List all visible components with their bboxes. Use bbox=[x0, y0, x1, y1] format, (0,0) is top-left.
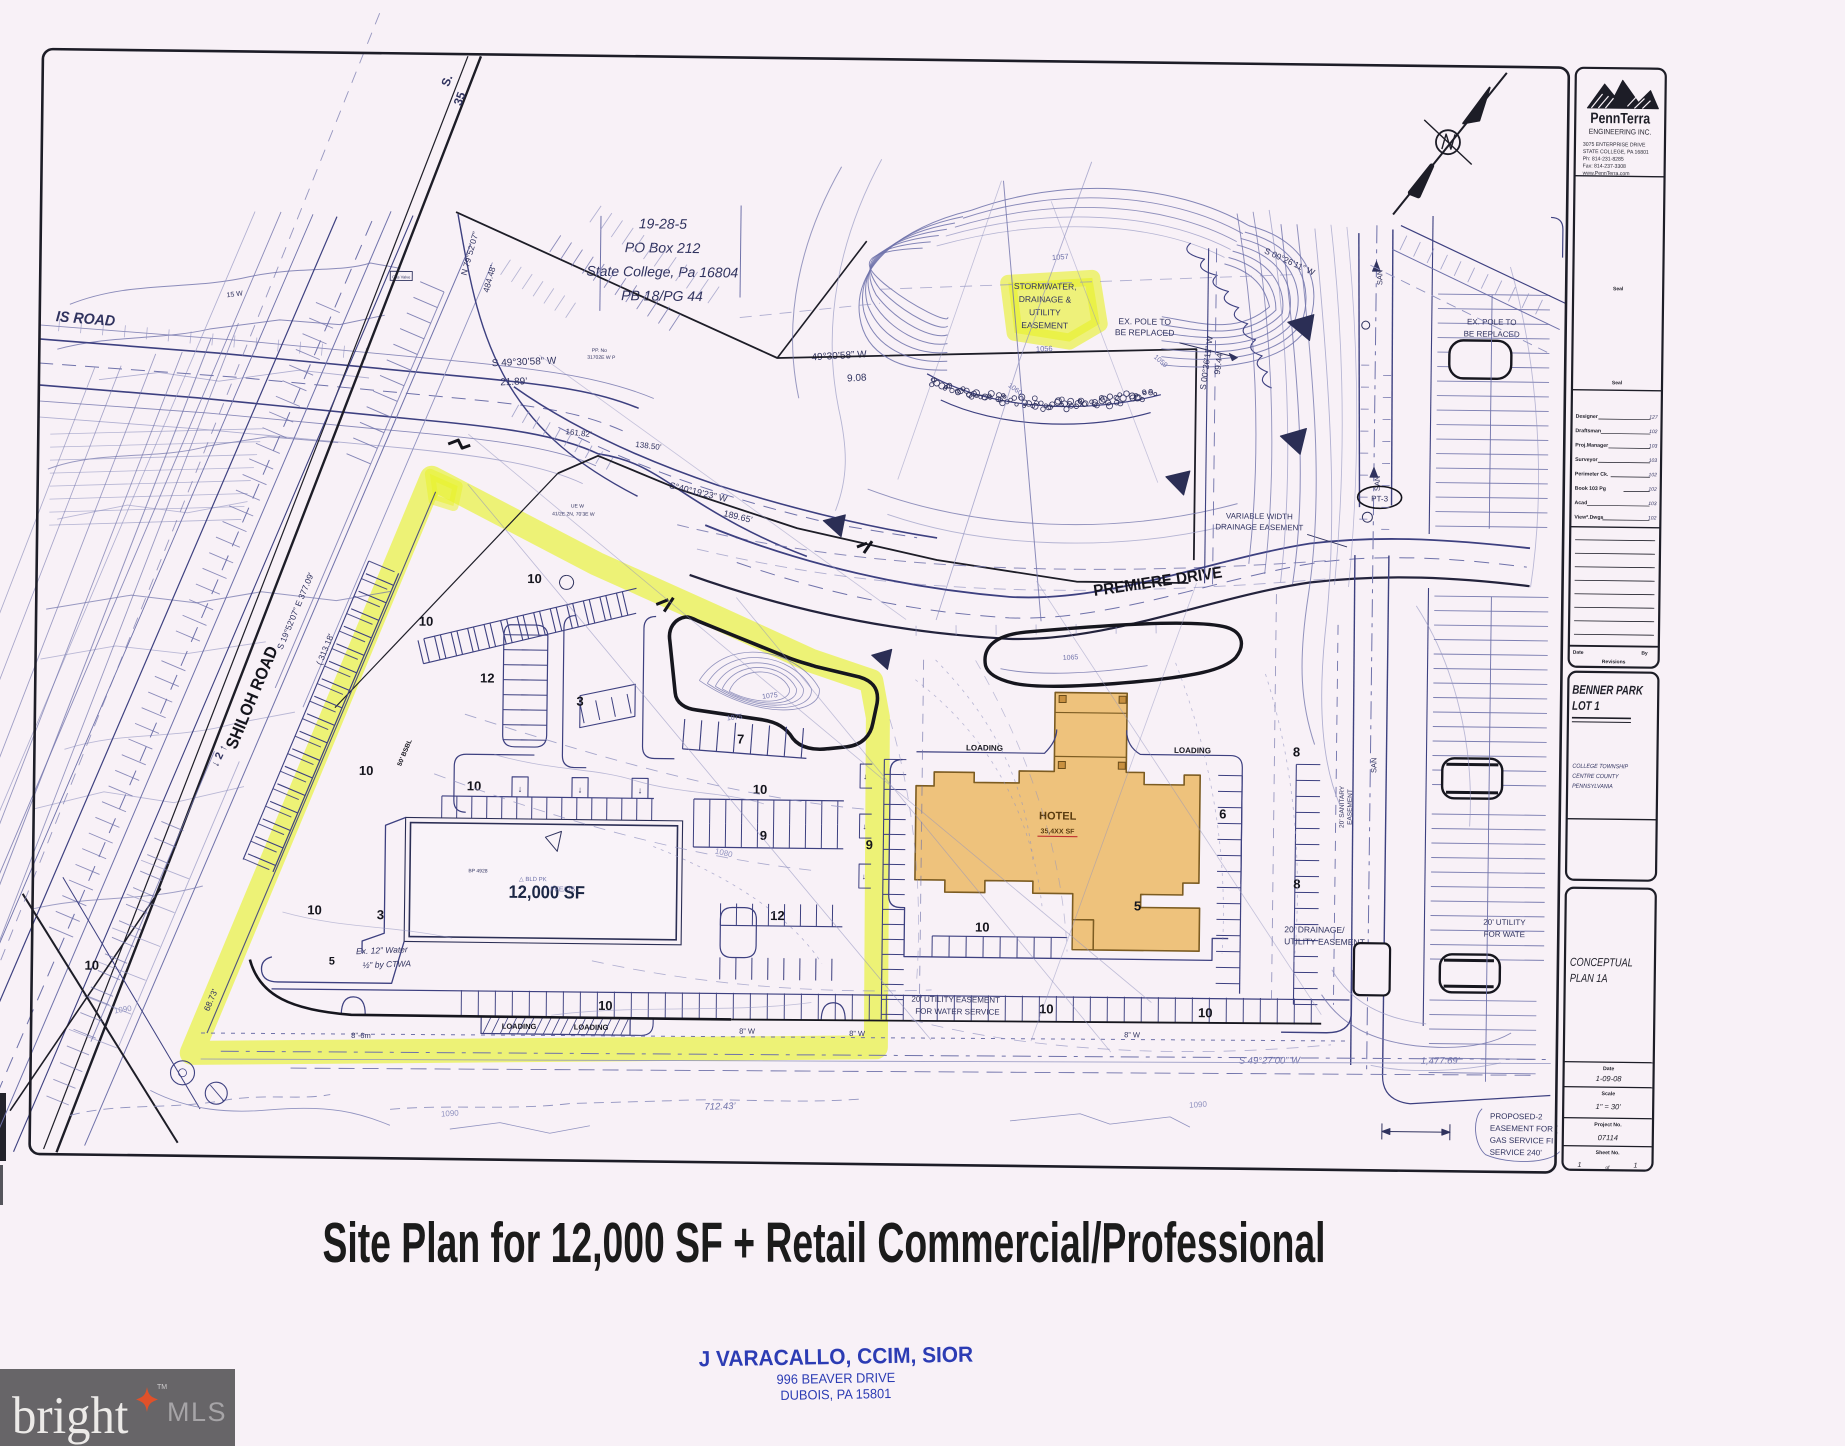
svg-text:8” W: 8” W bbox=[849, 1029, 866, 1038]
svg-text:102: 102 bbox=[1648, 515, 1657, 521]
svg-text:102: 102 bbox=[1649, 429, 1658, 435]
svg-text:TM: TM bbox=[157, 1384, 167, 1391]
svg-text:10: 10 bbox=[419, 614, 434, 629]
svg-text:↓: ↓ bbox=[863, 772, 867, 781]
svg-text:HOTEL: HOTEL bbox=[1039, 810, 1077, 822]
svg-text:20’ SANITARY: 20’ SANITARY bbox=[1339, 785, 1347, 828]
svg-text:↓: ↓ bbox=[863, 822, 867, 831]
svg-text:1065: 1065 bbox=[1063, 654, 1079, 662]
svg-text:By: By bbox=[1641, 651, 1648, 657]
svg-text:31702E W P: 31702E W P bbox=[587, 355, 616, 361]
svg-text:712.43’: 712.43’ bbox=[704, 1101, 736, 1113]
svg-text:20’ UTILITY EASEMENT: 20’ UTILITY EASEMENT bbox=[911, 995, 1000, 1005]
svg-text:MLS: MLS bbox=[167, 1397, 227, 1427]
svg-text:1057: 1057 bbox=[1052, 252, 1069, 262]
svg-text:↓: ↓ bbox=[518, 784, 523, 794]
svg-text:FOR WATE: FOR WATE bbox=[1484, 930, 1525, 940]
svg-text:LOADING: LOADING bbox=[574, 1023, 609, 1032]
svg-text:ENGINEERING INC.: ENGINEERING INC. bbox=[1589, 128, 1652, 137]
svg-text:10: 10 bbox=[84, 958, 99, 973]
svg-text:3: 3 bbox=[377, 907, 384, 922]
svg-text:LOADING: LOADING bbox=[966, 743, 1003, 752]
svg-text:1: 1 bbox=[1577, 1162, 1581, 1169]
svg-text:BE REPLACED: BE REPLACED bbox=[1115, 327, 1175, 338]
svg-text:UTILITY: UTILITY bbox=[1029, 307, 1061, 317]
svg-text:3: 3 bbox=[576, 694, 583, 709]
svg-text:Surveyor: Surveyor bbox=[1575, 457, 1598, 463]
svg-text:9.08: 9.08 bbox=[847, 372, 868, 384]
svg-text:LOADING: LOADING bbox=[502, 1022, 537, 1031]
svg-text:10: 10 bbox=[1039, 1001, 1054, 1016]
svg-text:996 BEAVER DRIVE: 996 BEAVER DRIVE bbox=[776, 1370, 895, 1387]
svg-text:127: 127 bbox=[1649, 415, 1658, 421]
svg-text:EX. POLE TO: EX. POLE TO bbox=[1118, 316, 1171, 327]
svg-text:1090: 1090 bbox=[1189, 1100, 1208, 1110]
svg-text:BENNER PARK: BENNER PARK bbox=[1572, 684, 1644, 698]
svg-text:Revisions: Revisions bbox=[1602, 659, 1626, 665]
svg-text:EASEMENT: EASEMENT bbox=[1347, 789, 1354, 825]
svg-text:Fax: 814-237-3308: Fax: 814-237-3308 bbox=[1583, 163, 1626, 170]
svg-text:Scale: Scale bbox=[1602, 1091, 1616, 1097]
svg-text:10: 10 bbox=[359, 763, 374, 778]
svg-text:10: 10 bbox=[753, 782, 768, 797]
svg-text:Acad: Acad bbox=[1575, 500, 1588, 506]
svg-text:1090: 1090 bbox=[441, 1109, 460, 1119]
svg-text:CONCEPTUAL: CONCEPTUAL bbox=[1570, 957, 1633, 970]
svg-text:1056: 1056 bbox=[1036, 344, 1053, 354]
svg-text:8: 8 bbox=[1293, 744, 1300, 759]
svg-text:PT-3: PT-3 bbox=[1371, 494, 1389, 503]
svg-text:8” W: 8” W bbox=[739, 1027, 756, 1036]
svg-text:↓: ↓ bbox=[638, 785, 643, 795]
svg-text:SERVICE 240’: SERVICE 240’ bbox=[1490, 1148, 1543, 1158]
svg-text:BE REPLACED: BE REPLACED bbox=[1464, 329, 1520, 339]
svg-text:↓: ↓ bbox=[862, 872, 866, 881]
svg-text:10: 10 bbox=[527, 571, 542, 586]
svg-text:Site Plan for 12,000 SF + Reta: Site Plan for 12,000 SF + Retail Commerc… bbox=[322, 1211, 1325, 1275]
svg-text:3075 ENTERPRISE DRIVE: 3075 ENTERPRISE DRIVE bbox=[1583, 142, 1646, 149]
svg-text:STATE COLLEGE, PA 16801: STATE COLLEGE, PA 16801 bbox=[1583, 149, 1649, 156]
svg-text:1,477.69’: 1,477.69’ bbox=[1421, 1056, 1461, 1067]
svg-text:CENTRE COUNTY: CENTRE COUNTY bbox=[1572, 774, 1620, 781]
svg-text:Ex. 12” Water: Ex. 12” Water bbox=[356, 944, 409, 956]
svg-text:41/2E 2N, 70’3E W: 41/2E 2N, 70’3E W bbox=[552, 511, 595, 518]
svg-text:10: 10 bbox=[307, 902, 322, 917]
svg-text:102: 102 bbox=[1648, 487, 1657, 493]
svg-text:Project No.: Project No. bbox=[1594, 1122, 1622, 1128]
svg-text:LOADING: LOADING bbox=[1174, 746, 1211, 755]
svg-text:VARIABLE WIDTH: VARIABLE WIDTH bbox=[1226, 511, 1293, 521]
svg-text:Date: Date bbox=[1603, 1066, 1614, 1072]
svg-text:20’ UTILITY: 20’ UTILITY bbox=[1483, 918, 1526, 928]
svg-text:Book 103 Pg: Book 103 Pg bbox=[1575, 486, 1606, 492]
svg-text:5: 5 bbox=[1134, 898, 1141, 913]
svg-text:View*.Dwgs: View*.Dwgs bbox=[1574, 515, 1603, 521]
svg-text:SAN: SAN bbox=[1369, 758, 1378, 774]
svg-text:SAN: SAN bbox=[1375, 270, 1384, 286]
svg-text:↓: ↓ bbox=[578, 785, 583, 795]
svg-text:EASEMENT: EASEMENT bbox=[1021, 320, 1068, 331]
svg-text:8”-6m: 8”-6m bbox=[351, 1031, 371, 1040]
svg-text:LOT 1: LOT 1 bbox=[1572, 700, 1600, 714]
svg-text:PENNSYLVANIA: PENNSYLVANIA bbox=[1572, 784, 1613, 791]
svg-text:7: 7 bbox=[737, 732, 744, 747]
svg-text:35,4XX SF: 35,4XX SF bbox=[1041, 828, 1076, 835]
svg-text:1-09-08: 1-09-08 bbox=[1596, 1074, 1623, 1083]
svg-text:EASEMENT FOR (: EASEMENT FOR ( bbox=[1490, 1124, 1558, 1134]
svg-text:½” by CTWA: ½” by CTWA bbox=[362, 958, 411, 970]
svg-text:8: 8 bbox=[1293, 876, 1300, 891]
svg-text:State College, Pa 16804: State College, Pa 16804 bbox=[586, 263, 738, 281]
svg-text:Sheet No.: Sheet No. bbox=[1596, 1150, 1621, 1156]
svg-text:21.89’: 21.89’ bbox=[500, 376, 528, 388]
svg-text:DRAINAGE EASEMENT: DRAINAGE EASEMENT bbox=[1215, 522, 1303, 532]
svg-text:FFE/ 75: FFE/ 75 bbox=[550, 886, 575, 893]
svg-text:10: 10 bbox=[975, 919, 990, 934]
svg-text:1" = 30’: 1" = 30’ bbox=[1595, 1102, 1621, 1111]
svg-text:Designer: Designer bbox=[1576, 414, 1598, 420]
svg-text:BP 4928: BP 4928 bbox=[468, 868, 487, 874]
svg-text:12: 12 bbox=[480, 670, 495, 685]
svg-text:PennTerra: PennTerra bbox=[1590, 110, 1650, 127]
svg-text:△ BLD PK: △ BLD PK bbox=[519, 877, 547, 883]
svg-text:SAN: SAN bbox=[1373, 476, 1382, 492]
svg-text:12: 12 bbox=[770, 908, 785, 923]
svg-text:PROPOSED-2: PROPOSED-2 bbox=[1490, 1112, 1543, 1122]
svg-text:19-28-5: 19-28-5 bbox=[639, 215, 688, 232]
svg-text:J VARACALLO, CCIM, SIOR: J VARACALLO, CCIM, SIOR bbox=[698, 1342, 973, 1371]
svg-text:9: 9 bbox=[866, 837, 873, 852]
svg-text:DUBOIS, PA 15801: DUBOIS, PA 15801 bbox=[780, 1386, 891, 1403]
svg-text:UE W: UE W bbox=[571, 503, 584, 509]
svg-text:Seal: Seal bbox=[1613, 286, 1624, 292]
svg-text:Proj.Manager: Proj.Manager bbox=[1575, 443, 1608, 449]
svg-text:103: 103 bbox=[1649, 458, 1658, 464]
svg-text:S 49°27’00” W: S 49°27’00” W bbox=[1239, 1055, 1301, 1066]
svg-text:PB 18/PG 44: PB 18/PG 44 bbox=[621, 287, 703, 304]
svg-text:6: 6 bbox=[1219, 806, 1226, 821]
svg-text:UTILITY EASEMENT: UTILITY EASEMENT bbox=[1284, 936, 1365, 947]
svg-text:8” W: 8” W bbox=[1124, 1030, 1141, 1039]
svg-text:103: 103 bbox=[1648, 501, 1657, 507]
svg-text:20’ DRAINAGE/: 20’ DRAINAGE/ bbox=[1284, 924, 1345, 935]
svg-text:1: 1 bbox=[1633, 1163, 1637, 1170]
svg-text:10: 10 bbox=[467, 778, 482, 793]
svg-text:103: 103 bbox=[1649, 443, 1658, 449]
svg-text:of: of bbox=[1605, 1165, 1610, 1171]
svg-text:Ph: 814-231-8285: Ph: 814-231-8285 bbox=[1583, 156, 1624, 163]
svg-text:Draftsman: Draftsman bbox=[1575, 428, 1601, 434]
svg-text:102: 102 bbox=[1649, 472, 1658, 478]
svg-text:FOR WATER SERVICE: FOR WATER SERVICE bbox=[915, 1007, 999, 1017]
svg-text:COLLEGE TOWNSHIP: COLLEGE TOWNSHIP bbox=[1572, 764, 1628, 771]
svg-text:Seal: Seal bbox=[1612, 380, 1623, 386]
svg-text:Date: Date bbox=[1573, 650, 1584, 656]
svg-text:EX. POLE TO: EX. POLE TO bbox=[1467, 317, 1517, 327]
svg-text:DRAINAGE &: DRAINAGE & bbox=[1019, 294, 1072, 305]
svg-text:10: 10 bbox=[1198, 1005, 1213, 1020]
svg-text:PP. No: PP. No bbox=[592, 348, 607, 354]
svg-text:5: 5 bbox=[329, 956, 335, 968]
svg-text:07114: 07114 bbox=[1598, 1133, 1618, 1142]
svg-text:PLAN 1A: PLAN 1A bbox=[1570, 973, 1608, 986]
svg-text:bright: bright bbox=[12, 1387, 128, 1445]
svg-text:GAS SERVICE FI: GAS SERVICE FI bbox=[1490, 1136, 1554, 1146]
svg-text:Perimeter Ck.: Perimeter Ck. bbox=[1575, 471, 1609, 477]
